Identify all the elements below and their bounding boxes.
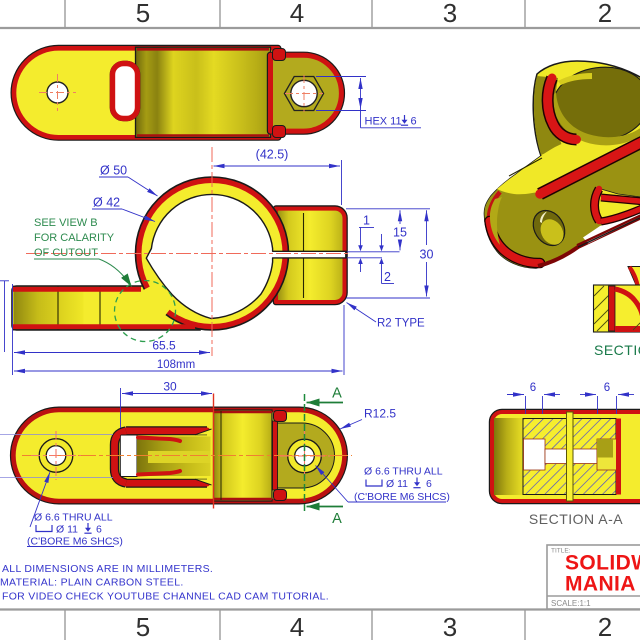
svg-text:Ø 50: Ø 50 <box>100 164 127 178</box>
svg-text:2: 2 <box>384 270 391 284</box>
svg-text:30: 30 <box>163 380 177 394</box>
svg-text:5: 5 <box>136 612 150 640</box>
svg-text:2: 2 <box>598 0 612 28</box>
svg-text:4: 4 <box>290 0 304 28</box>
svg-text:OF CUTOUT: OF CUTOUT <box>34 247 98 259</box>
svg-text:(C'BORE M6 SHCS): (C'BORE M6 SHCS) <box>354 491 450 503</box>
svg-text:30: 30 <box>420 248 434 262</box>
svg-text:MATERIAL: PLAIN CARBON STEEL.: MATERIAL: PLAIN CARBON STEEL. <box>0 577 184 589</box>
svg-text:5: 5 <box>136 0 150 28</box>
svg-text:MANIA: MANIA <box>565 573 636 596</box>
svg-text:Ø 11: Ø 11 <box>56 524 78 536</box>
svg-text:(C'BORE M6 SHCS): (C'BORE M6 SHCS) <box>27 536 123 548</box>
svg-text:SEE VIEW B: SEE VIEW B <box>34 217 98 229</box>
svg-text:6: 6 <box>530 382 536 394</box>
svg-text:R12.5: R12.5 <box>364 407 396 421</box>
svg-text:15: 15 <box>393 226 407 240</box>
svg-text:Ø 11: Ø 11 <box>386 478 408 490</box>
svg-text:FOR VIDEO CHECK YOUTUBE CHANNE: FOR VIDEO CHECK YOUTUBE CHANNEL CAD CAM … <box>2 591 329 603</box>
svg-text:SECTION A-A: SECTION A-A <box>529 511 623 527</box>
svg-text:HEX 11: HEX 11 <box>365 116 402 128</box>
svg-text:A: A <box>332 511 342 527</box>
svg-text:65.5: 65.5 <box>152 339 176 353</box>
svg-text:6: 6 <box>604 382 610 394</box>
svg-text:6: 6 <box>411 116 417 128</box>
svg-text:SCALE:1:1: SCALE:1:1 <box>551 599 591 608</box>
svg-text:1: 1 <box>363 214 370 228</box>
svg-text:6: 6 <box>426 478 432 490</box>
svg-text:6: 6 <box>96 524 102 536</box>
svg-text:ALL DIMENSIONS ARE IN MILLIMET: ALL DIMENSIONS ARE IN MILLIMETERS. <box>2 563 213 575</box>
svg-text:Ø 6.6 THRU ALL: Ø 6.6 THRU ALL <box>34 512 113 524</box>
svg-text:Ø 42: Ø 42 <box>93 196 120 210</box>
svg-text:2: 2 <box>598 612 612 640</box>
svg-text:FOR CALARITY: FOR CALARITY <box>34 232 115 244</box>
svg-text:SOLIDWORKS: SOLIDWORKS <box>565 552 640 575</box>
svg-text:(42.5): (42.5) <box>256 148 289 162</box>
svg-text:4: 4 <box>290 612 304 640</box>
svg-text:Ø 6.6 THRU ALL: Ø 6.6 THRU ALL <box>364 466 443 478</box>
svg-text:R2 TYPE: R2 TYPE <box>377 318 425 330</box>
svg-text:108mm: 108mm <box>157 359 195 371</box>
svg-text:SECTION B: SECTION B <box>594 342 640 358</box>
svg-text:3: 3 <box>443 0 457 28</box>
svg-text:3: 3 <box>443 612 457 640</box>
svg-text:A: A <box>332 386 342 402</box>
